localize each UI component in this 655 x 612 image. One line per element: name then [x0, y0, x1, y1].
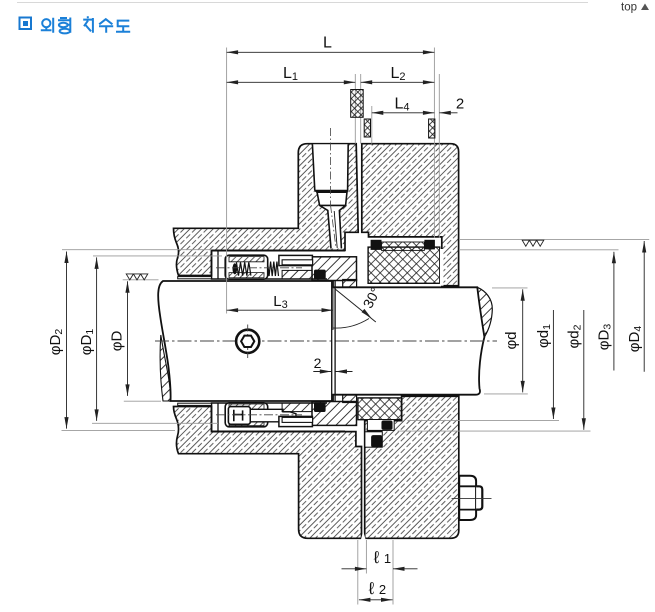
svg-text:2: 2: [456, 96, 464, 113]
svg-text:2: 2: [379, 582, 386, 597]
svg-text:L: L: [323, 35, 332, 52]
svg-text:top: top: [621, 2, 637, 14]
svg-text:2: 2: [314, 355, 322, 371]
svg-text:ℓ: ℓ: [368, 579, 375, 598]
svg-text:ℓ: ℓ: [373, 548, 380, 567]
svg-text:φD: φD: [109, 331, 126, 352]
svg-text:1: 1: [384, 551, 391, 566]
svg-text:φd: φd: [503, 331, 520, 349]
